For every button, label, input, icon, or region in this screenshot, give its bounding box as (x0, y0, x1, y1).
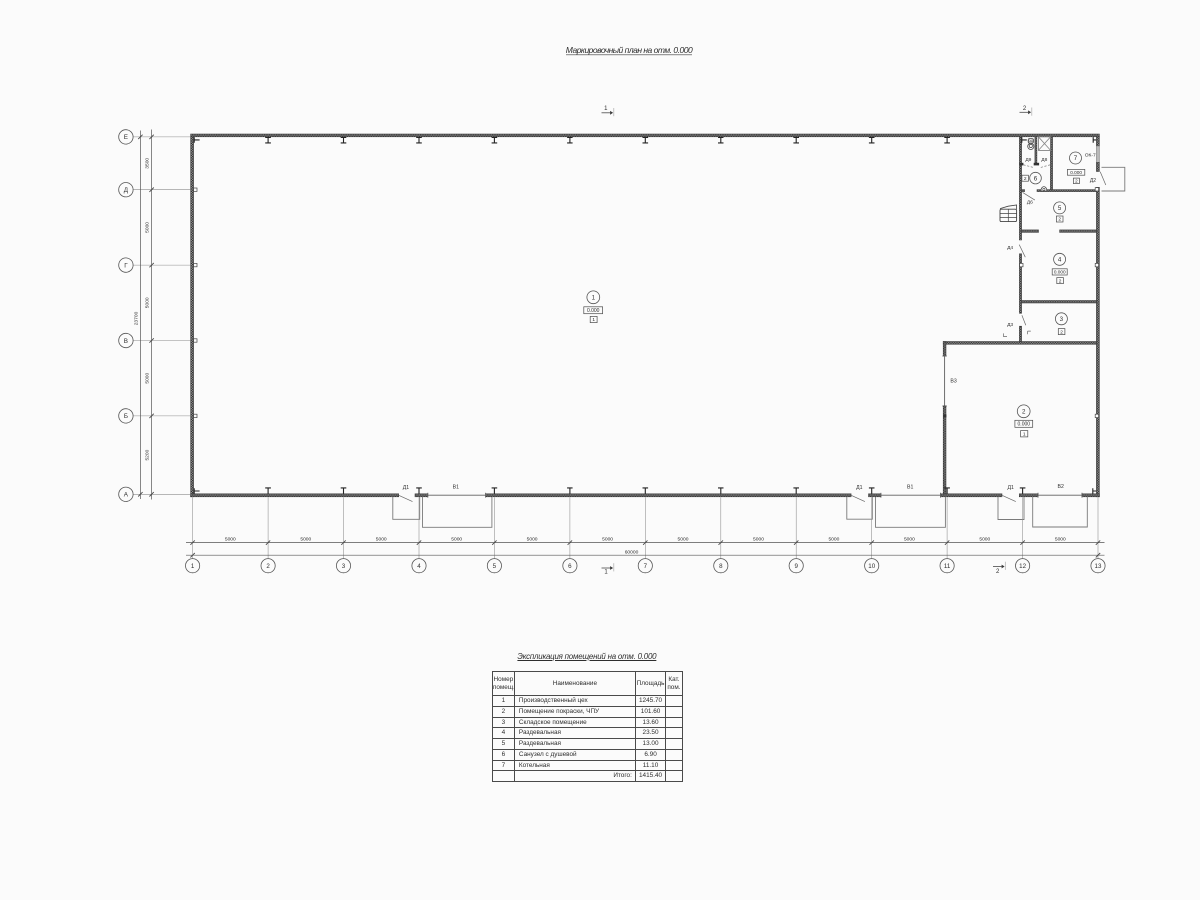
svg-text:3500: 3500 (145, 158, 151, 169)
svg-text:1: 1 (1023, 432, 1026, 438)
svg-text:60000: 60000 (625, 549, 639, 555)
svg-text:6: 6 (568, 563, 572, 570)
svg-text:В1: В1 (907, 484, 913, 490)
svg-text:1: 1 (604, 570, 608, 576)
svg-text:1: 1 (592, 317, 595, 323)
svg-text:0.000: 0.000 (1070, 170, 1082, 175)
svg-text:5000: 5000 (678, 537, 689, 543)
svg-text:Д8: Д8 (1041, 157, 1047, 163)
svg-text:5000: 5000 (527, 537, 538, 543)
svg-text:9: 9 (794, 563, 798, 570)
svg-text:0.000: 0.000 (587, 308, 600, 314)
svg-text:5000: 5000 (300, 537, 311, 543)
svg-text:8: 8 (719, 563, 723, 570)
svg-text:2: 2 (1059, 278, 1062, 284)
svg-text:5: 5 (493, 563, 497, 570)
svg-text:5000: 5000 (225, 537, 236, 543)
svg-text:5000: 5000 (602, 537, 613, 543)
svg-text:5000: 5000 (904, 537, 915, 543)
svg-text:В2: В2 (1058, 484, 1064, 490)
svg-text:Д: Д (124, 187, 129, 194)
svg-text:Д1: Д1 (856, 485, 863, 491)
svg-text:5000: 5000 (828, 537, 839, 543)
svg-text:10: 10 (868, 563, 875, 570)
svg-text:0.000: 0.000 (1054, 270, 1066, 275)
svg-text:5000: 5000 (145, 297, 151, 308)
svg-text:3: 3 (1060, 316, 1064, 323)
svg-text:В3: В3 (950, 379, 956, 385)
svg-text:7: 7 (1074, 155, 1078, 162)
svg-text:0.000: 0.000 (1018, 422, 1031, 428)
svg-text:ОК-7: ОК-7 (1085, 152, 1096, 158)
svg-text:5200: 5200 (145, 449, 151, 460)
svg-text:1: 1 (604, 106, 608, 112)
svg-text:23700: 23700 (133, 311, 139, 325)
svg-text:Маркировочный план на отм. 0.0: Маркировочный план на отм. 0.000 (566, 45, 693, 55)
svg-text:7: 7 (644, 563, 648, 570)
svg-text:Д1: Д1 (403, 485, 410, 491)
svg-text:4: 4 (417, 563, 421, 570)
svg-text:Д1: Д1 (1007, 485, 1014, 491)
svg-text:2: 2 (1060, 329, 1063, 335)
svg-text:А: А (124, 492, 129, 499)
svg-text:3: 3 (342, 563, 346, 570)
svg-text:12: 12 (1019, 563, 1026, 570)
svg-text:6: 6 (1034, 175, 1038, 182)
svg-text:2: 2 (1023, 106, 1027, 112)
svg-text:5000: 5000 (145, 372, 151, 383)
svg-text:5000: 5000 (145, 222, 151, 233)
svg-text:В1: В1 (453, 485, 459, 491)
svg-text:4: 4 (1058, 257, 1062, 264)
svg-text:Д3: Д3 (1007, 322, 1013, 328)
svg-text:2: 2 (1022, 409, 1026, 416)
svg-text:2: 2 (266, 563, 270, 570)
svg-text:Г: Г (124, 262, 128, 269)
svg-text:Б: Б (124, 413, 128, 420)
svg-text:Д6: Д6 (1027, 199, 1033, 205)
svg-text:Д9: Д9 (1025, 157, 1031, 163)
svg-text:13: 13 (1095, 563, 1102, 570)
svg-text:1: 1 (191, 563, 195, 570)
svg-text:2: 2 (1058, 217, 1061, 223)
svg-text:Е: Е (124, 134, 128, 141)
svg-text:2: 2 (1024, 176, 1027, 182)
svg-text:2: 2 (996, 569, 1000, 575)
svg-text:11: 11 (944, 563, 951, 570)
svg-text:5000: 5000 (451, 537, 462, 543)
svg-text:Д4: Д4 (1007, 245, 1013, 251)
svg-text:5000: 5000 (376, 537, 387, 543)
svg-text:В: В (124, 338, 128, 345)
svg-text:5: 5 (1058, 205, 1062, 212)
svg-text:5000: 5000 (1055, 537, 1066, 543)
svg-text:5000: 5000 (753, 537, 764, 543)
svg-text:2: 2 (1075, 179, 1078, 184)
svg-text:Д2: Д2 (1090, 178, 1096, 184)
svg-text:1: 1 (592, 295, 596, 302)
svg-text:5000: 5000 (979, 537, 990, 543)
